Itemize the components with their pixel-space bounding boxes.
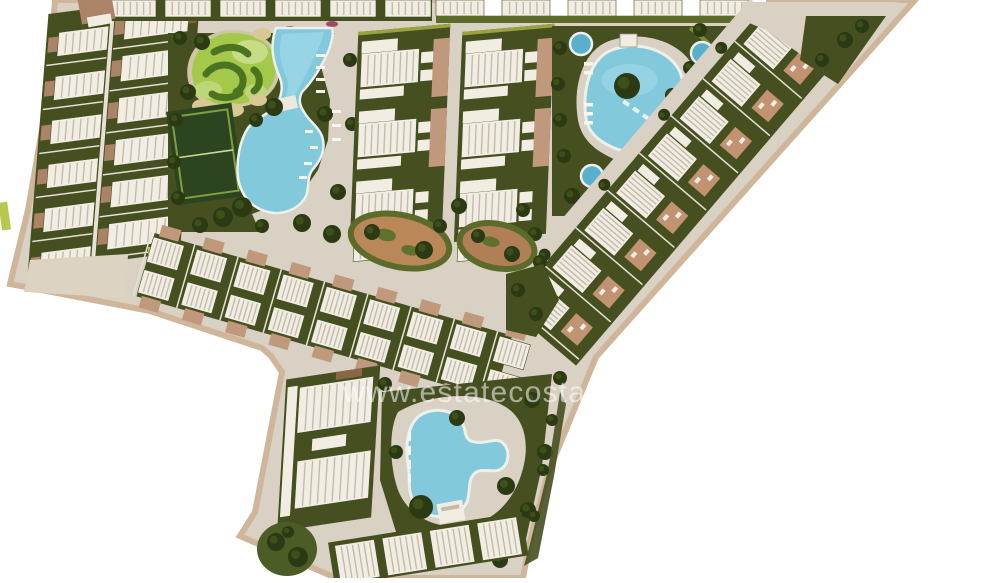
svg-text:www.estatecosta.com: www.estatecosta.com: [342, 376, 656, 409]
